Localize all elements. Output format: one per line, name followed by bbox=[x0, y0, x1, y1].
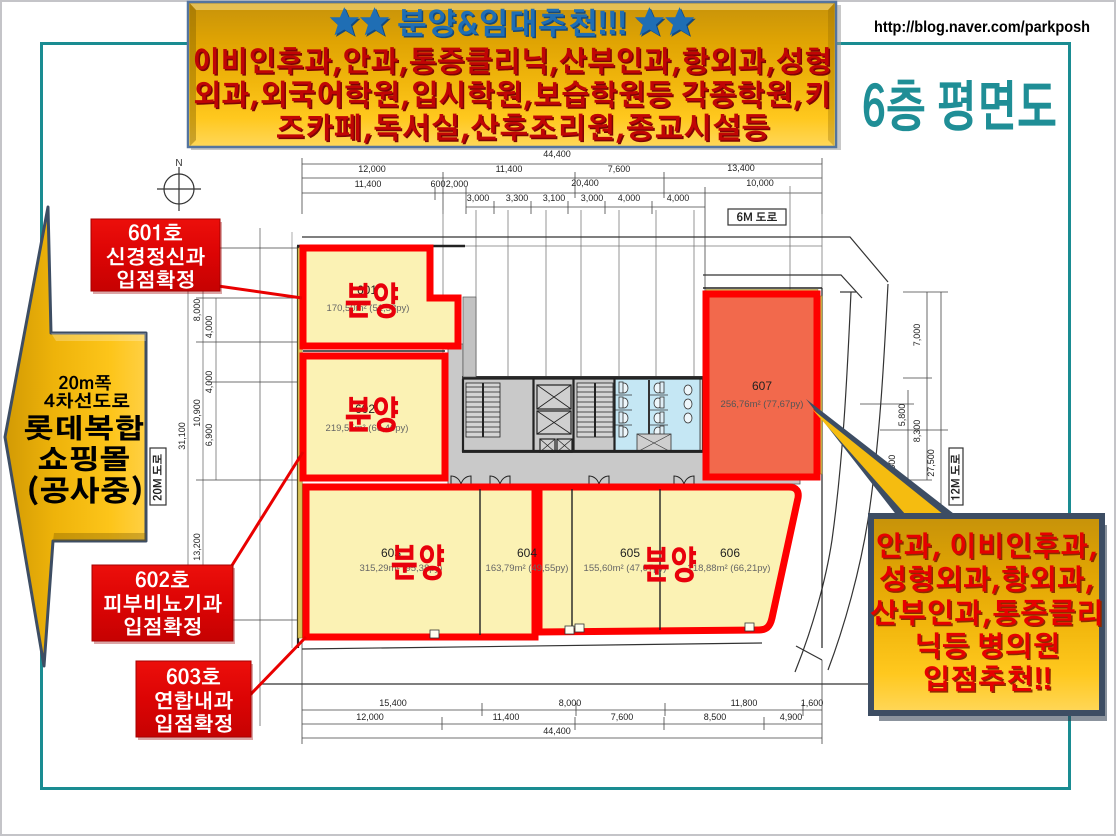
svg-text:13,400: 13,400 bbox=[727, 163, 755, 173]
svg-text:44,400: 44,400 bbox=[543, 149, 571, 159]
svg-text:10,000: 10,000 bbox=[746, 178, 774, 188]
svg-text:4,000: 4,000 bbox=[204, 371, 214, 394]
svg-text:606: 606 bbox=[720, 546, 740, 560]
svg-text:15,400: 15,400 bbox=[379, 698, 407, 708]
svg-text:20,400: 20,400 bbox=[571, 178, 599, 188]
svg-text:11,800: 11,800 bbox=[731, 698, 758, 708]
svg-text:163,79m² (49,55py): 163,79m² (49,55py) bbox=[486, 563, 569, 574]
svg-text:256,76m² (77,67py): 256,76m² (77,67py) bbox=[721, 399, 804, 410]
svg-text:7,600: 7,600 bbox=[611, 712, 634, 722]
svg-text:7,000: 7,000 bbox=[912, 324, 922, 347]
svg-text:4,000: 4,000 bbox=[667, 193, 690, 203]
svg-text:4,000: 4,000 bbox=[204, 316, 214, 339]
svg-text:604: 604 bbox=[517, 546, 537, 560]
svg-text:3,100: 3,100 bbox=[543, 193, 566, 203]
svg-text:27,500: 27,500 bbox=[926, 449, 936, 477]
svg-text:12,000: 12,000 bbox=[358, 164, 386, 174]
svg-text:13,200: 13,200 bbox=[192, 533, 202, 561]
svg-text:8,500: 8,500 bbox=[704, 712, 727, 722]
svg-text:31,100: 31,100 bbox=[177, 422, 187, 450]
svg-text:3,300: 3,300 bbox=[506, 193, 529, 203]
svg-text:218,88m² (66,21py): 218,88m² (66,21py) bbox=[688, 563, 771, 574]
svg-text:11,400: 11,400 bbox=[496, 164, 523, 174]
svg-text:3,000: 3,000 bbox=[581, 193, 604, 203]
svg-text:8,000: 8,000 bbox=[192, 299, 202, 322]
svg-text:8,300: 8,300 bbox=[912, 420, 922, 443]
svg-text:605: 605 bbox=[620, 546, 640, 560]
svg-text:4,000: 4,000 bbox=[618, 193, 641, 203]
svg-text:8,000: 8,000 bbox=[559, 698, 582, 708]
svg-text:607: 607 bbox=[752, 379, 772, 393]
svg-text:600: 600 bbox=[430, 179, 445, 189]
svg-text:3,000: 3,000 bbox=[467, 193, 490, 203]
svg-text:http://blog.naver.com/parkposh: http://blog.naver.com/parkposh bbox=[874, 19, 1090, 36]
svg-text:11,400: 11,400 bbox=[355, 179, 382, 189]
svg-text:44,400: 44,400 bbox=[543, 726, 571, 736]
svg-text:11,400: 11,400 bbox=[493, 712, 520, 722]
svg-text:N: N bbox=[175, 158, 182, 169]
svg-text:5,800: 5,800 bbox=[897, 404, 907, 427]
svg-text:2,000: 2,000 bbox=[446, 179, 469, 189]
svg-text:10,900: 10,900 bbox=[192, 399, 202, 427]
svg-text:1,600: 1,600 bbox=[801, 698, 824, 708]
svg-text:6,900: 6,900 bbox=[204, 424, 214, 447]
svg-text:7,600: 7,600 bbox=[608, 164, 631, 174]
svg-text:12,000: 12,000 bbox=[356, 712, 384, 722]
svg-text:4,900: 4,900 bbox=[780, 712, 803, 722]
